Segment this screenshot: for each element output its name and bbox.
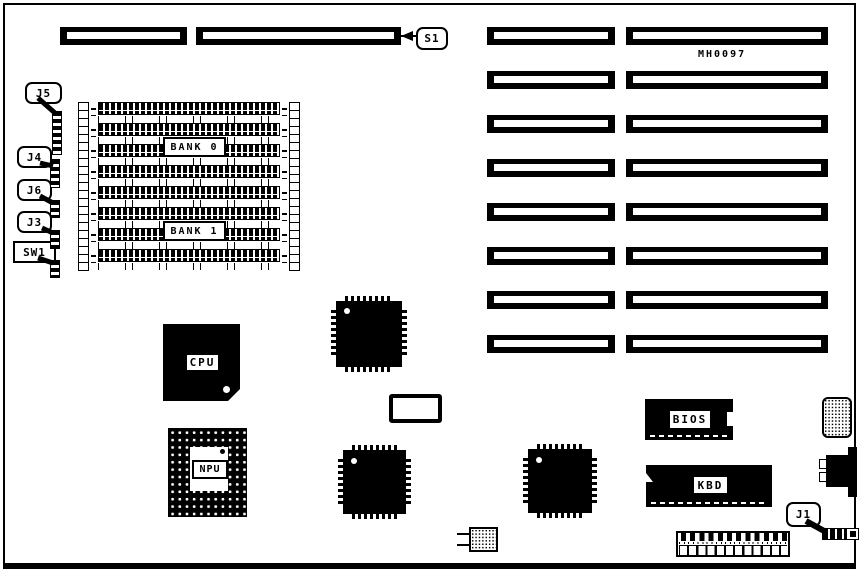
- kbd-tag: KBD: [694, 477, 727, 493]
- callout-j1: J1: [786, 502, 821, 527]
- slot-contact-stripe: [633, 164, 821, 171]
- callout-s1-label: S1: [424, 32, 439, 45]
- simm-socket: [98, 207, 280, 220]
- qfp-pins-top: [345, 296, 393, 301]
- din-connector-body: [826, 455, 848, 487]
- simm-socket: [98, 165, 280, 178]
- expansion-slot: [626, 203, 828, 221]
- j3-pin-header: [50, 230, 60, 249]
- slot-row: [487, 291, 828, 309]
- slot-contact-stripe: [494, 340, 608, 347]
- kbd-notch: [646, 473, 653, 482]
- slot-row: [487, 203, 828, 221]
- simm-socket: [98, 249, 280, 262]
- simm-gap: [98, 157, 280, 165]
- slot-contact-stripe: [494, 252, 608, 259]
- qfp-pin1-dot: [344, 308, 350, 314]
- npu-tag: NPU: [192, 460, 228, 479]
- slot-contact-stripe: [494, 208, 608, 215]
- j1-pin-header: [822, 528, 859, 540]
- callout-j1-label: J1: [796, 508, 811, 521]
- memory-simm-bank: [78, 102, 300, 271]
- qfp-pins-bottom: [352, 514, 397, 519]
- oscillator-can: [389, 394, 442, 423]
- qfp-chip-2: [343, 450, 406, 514]
- qfp-pins-top: [537, 444, 583, 449]
- kbd-label: KBD: [698, 479, 724, 492]
- slot-contact-stripe: [633, 296, 821, 303]
- slot-contact-stripe: [494, 76, 608, 83]
- callout-j6: J6: [17, 179, 52, 201]
- slot-contact-stripe: [67, 32, 180, 39]
- npu-pin1-dot: [220, 449, 225, 454]
- qfp-pins-top: [352, 445, 397, 450]
- memory-right-brackets: [280, 102, 289, 271]
- qfp-chip-3: [528, 449, 592, 513]
- expansion-slot: [487, 27, 615, 45]
- expansion-slot: [487, 247, 615, 265]
- expansion-slot: [487, 159, 615, 177]
- simm-gap: [98, 241, 280, 249]
- cpu-tag: CPU: [187, 355, 218, 370]
- motherboard-diagram: S1 MH0097 J5 J4 J6 J3 SW1: [0, 0, 862, 578]
- cpu-label: CPU: [190, 356, 216, 369]
- slot-row: [487, 71, 828, 89]
- power-pins-top: [679, 533, 787, 541]
- din-connector-pin: [819, 472, 827, 482]
- part-number: MH0097: [698, 49, 746, 60]
- simm-socket: [98, 186, 280, 199]
- qfp-pins-left: [331, 310, 336, 358]
- expansion-slot: [487, 291, 615, 309]
- bios-pin-row: [650, 435, 728, 437]
- slot-contact-stripe: [633, 76, 821, 83]
- bios-tag: BIOS: [670, 411, 710, 428]
- qfp-pins-right: [402, 310, 407, 358]
- slot-contact-stripe: [633, 32, 821, 39]
- qfp-pin1-dot: [351, 458, 357, 464]
- bios-notch: [727, 412, 733, 426]
- callout-s1: S1: [416, 27, 448, 50]
- slot-row: [487, 159, 828, 177]
- slot-row: [487, 335, 828, 353]
- expansion-slot: [626, 291, 828, 309]
- simm-socket: [98, 123, 280, 136]
- expansion-slot-bank: [487, 27, 828, 353]
- memory-rows: [98, 102, 280, 271]
- slot-contact-stripe: [633, 252, 821, 259]
- callout-sw1-label: SW1: [23, 246, 46, 259]
- callout-j3-label: J3: [27, 216, 42, 229]
- callout-j3: J3: [17, 211, 52, 233]
- slot-contact-stripe: [633, 120, 821, 127]
- expansion-slot: [487, 115, 615, 133]
- simm-socket: [98, 102, 280, 115]
- qfp-pin1-dot: [536, 457, 542, 463]
- din-connector-pin: [819, 459, 827, 469]
- bios-chip: BIOS: [645, 399, 733, 440]
- din-connector-edge: [848, 447, 857, 497]
- qfp-pins-right: [406, 459, 411, 505]
- j1-pin-end: [847, 529, 858, 539]
- j6-pin-header: [50, 200, 60, 218]
- bank1-label: BANK 1: [170, 226, 218, 237]
- memory-left-brackets: [89, 102, 98, 271]
- callout-j5-label: J5: [36, 87, 51, 100]
- slot-row: [487, 27, 828, 45]
- simm-gap: [98, 115, 280, 123]
- expansion-slot: [626, 71, 828, 89]
- power-pins-bottom: [679, 545, 787, 555]
- callout-j4: J4: [17, 146, 52, 168]
- cpu-chip: CPU: [163, 324, 240, 401]
- npu-socket: NPU: [168, 428, 247, 517]
- qfp-pins-bottom: [345, 367, 393, 372]
- slot-contact-stripe: [494, 120, 608, 127]
- bios-label: BIOS: [673, 413, 708, 426]
- j5-pin-header: [52, 111, 62, 155]
- slot-row: [487, 247, 828, 265]
- sw1-dip-switch: [50, 260, 60, 278]
- slot-contact-stripe: [633, 340, 821, 347]
- qfp-pins-bottom: [537, 513, 583, 518]
- qfp-chip-1: [336, 301, 402, 367]
- power-connector: [676, 531, 790, 557]
- slot-contact-stripe: [633, 208, 821, 215]
- expansion-slot: [487, 335, 615, 353]
- simm-gap: [98, 262, 280, 270]
- top-slot-2: [196, 27, 401, 45]
- slot-contact-stripe: [494, 164, 608, 171]
- crystal-component: [469, 527, 498, 552]
- expansion-slot: [626, 159, 828, 177]
- bank0-tag: BANK 0: [163, 137, 226, 157]
- memory-right-rail: [289, 102, 300, 271]
- edge-connector-hatched: [822, 397, 852, 438]
- j4-pin-header: [50, 159, 60, 188]
- kbd-chip: KBD: [646, 465, 772, 507]
- npu-label: NPU: [199, 464, 220, 475]
- bank0-label: BANK 0: [170, 142, 218, 153]
- callout-j5: J5: [25, 82, 62, 104]
- qfp-pins-right: [592, 458, 597, 504]
- expansion-slot: [487, 71, 615, 89]
- cpu-pin1-dot: [223, 386, 230, 393]
- slot-contact-stripe: [203, 32, 394, 39]
- simm-gap: [98, 199, 280, 207]
- callout-j6-label: J6: [27, 184, 42, 197]
- slot-row: [487, 115, 828, 133]
- expansion-slot: [626, 27, 828, 45]
- bank1-tag: BANK 1: [163, 221, 226, 241]
- slot-contact-stripe: [494, 296, 608, 303]
- npu-inner: NPU: [190, 447, 228, 491]
- simm-gap: [98, 178, 280, 186]
- top-slot-1: [60, 27, 187, 45]
- callout-j4-label: J4: [27, 151, 42, 164]
- expansion-slot: [626, 335, 828, 353]
- j1-pin-block: [850, 531, 856, 537]
- expansion-slot: [626, 247, 828, 265]
- j1-pins: [823, 529, 847, 539]
- kbd-pin-row: [651, 502, 767, 504]
- memory-left-rail: [78, 102, 89, 271]
- qfp-pins-left: [523, 458, 528, 504]
- slot-contact-stripe: [494, 32, 608, 39]
- expansion-slot: [626, 115, 828, 133]
- qfp-pins-left: [338, 459, 343, 505]
- expansion-slot: [487, 203, 615, 221]
